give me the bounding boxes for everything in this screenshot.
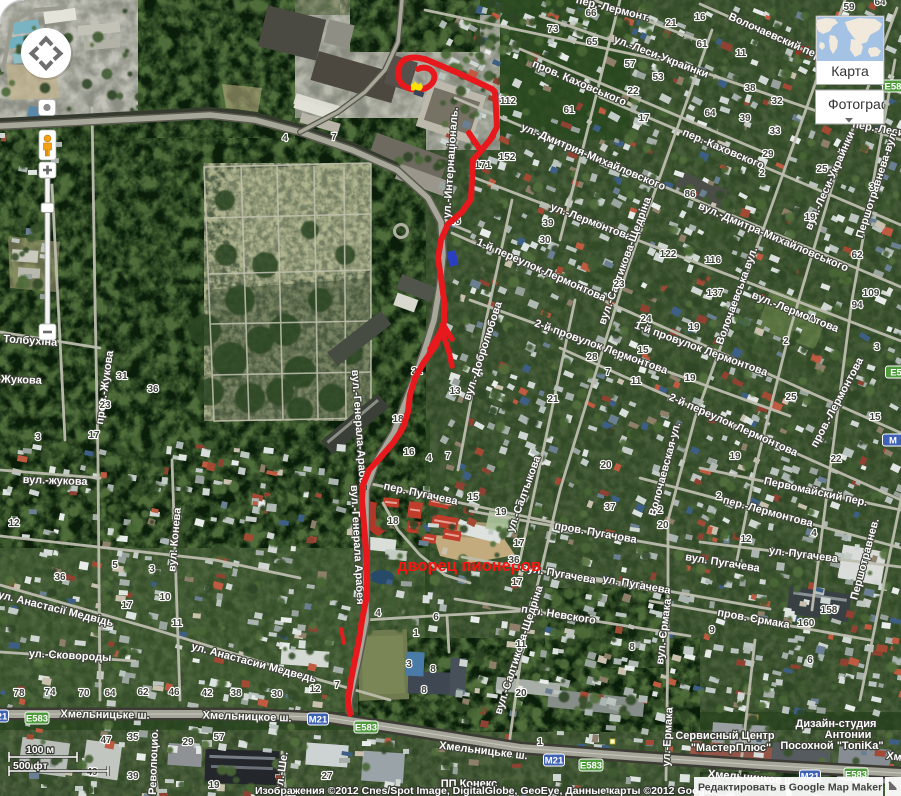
svg-text:Е58: Е58 bbox=[885, 82, 901, 93]
svg-text:17: 17 bbox=[88, 430, 100, 441]
svg-text:74: 74 bbox=[44, 687, 56, 698]
svg-text:24: 24 bbox=[640, 314, 652, 325]
svg-text:61: 61 bbox=[563, 105, 575, 116]
svg-text:3: 3 bbox=[869, 182, 875, 193]
svg-text:7: 7 bbox=[331, 132, 337, 143]
svg-text:Е5: Е5 bbox=[890, 368, 901, 379]
svg-text:Революцио.: Революцио. bbox=[147, 729, 161, 795]
svg-text:36: 36 bbox=[54, 572, 66, 583]
svg-text:25: 25 bbox=[785, 392, 797, 403]
svg-text:3: 3 bbox=[874, 342, 880, 353]
svg-text:23: 23 bbox=[99, 400, 111, 411]
svg-text:62: 62 bbox=[851, 250, 863, 261]
svg-text:"МастерПлюс": "МастерПлюс" bbox=[691, 742, 771, 754]
svg-text:59: 59 bbox=[843, 2, 855, 13]
svg-text:66: 66 bbox=[585, 8, 597, 19]
svg-text:19: 19 bbox=[804, 212, 816, 223]
svg-text:7: 7 bbox=[605, 367, 611, 378]
svg-text:17: 17 bbox=[511, 577, 523, 588]
svg-text:8: 8 bbox=[430, 664, 436, 675]
svg-text:31: 31 bbox=[116, 371, 128, 382]
svg-text:Е583: Е583 bbox=[26, 714, 48, 725]
svg-text:Е583: Е583 bbox=[580, 761, 602, 772]
svg-text:39: 39 bbox=[739, 113, 751, 124]
svg-text:11: 11 bbox=[172, 618, 183, 629]
svg-text:25: 25 bbox=[816, 164, 828, 175]
svg-text:10: 10 bbox=[159, 592, 171, 603]
svg-text:23: 23 bbox=[613, 279, 625, 290]
svg-text:30: 30 bbox=[271, 689, 283, 700]
svg-text:160: 160 bbox=[798, 618, 815, 629]
svg-text:М21: М21 bbox=[309, 715, 328, 726]
svg-text:36: 36 bbox=[508, 555, 520, 566]
svg-text:6: 6 bbox=[807, 655, 813, 666]
svg-text:27: 27 bbox=[321, 771, 333, 782]
svg-text:р-Жукова: р-Жукова bbox=[0, 373, 43, 387]
svg-text:116: 116 bbox=[705, 255, 722, 266]
svg-text:1: 1 bbox=[413, 628, 419, 639]
svg-text:17: 17 bbox=[513, 538, 525, 549]
svg-text:78: 78 bbox=[13, 688, 25, 699]
svg-text:1: 1 bbox=[537, 737, 543, 748]
svg-text:100 м: 100 м bbox=[26, 744, 54, 756]
svg-text:152: 152 bbox=[499, 152, 516, 163]
svg-text:19: 19 bbox=[208, 780, 220, 791]
svg-text:64: 64 bbox=[704, 108, 716, 119]
svg-text:11: 11 bbox=[516, 639, 527, 650]
svg-text:38: 38 bbox=[230, 688, 242, 699]
svg-text:Карта: Карта bbox=[831, 63, 869, 79]
svg-text:94: 94 bbox=[851, 300, 863, 311]
svg-text:36: 36 bbox=[147, 384, 159, 395]
svg-text:39: 39 bbox=[542, 218, 554, 229]
svg-text:8: 8 bbox=[421, 685, 427, 696]
svg-text:Изображения ©2012 Cnes/Spot Im: Изображения ©2012 Cnes/Spot Image, Digit… bbox=[255, 785, 721, 796]
svg-text:33: 33 bbox=[769, 126, 781, 137]
svg-text:29: 29 bbox=[182, 737, 194, 748]
svg-text:15: 15 bbox=[869, 412, 881, 423]
svg-text:70: 70 bbox=[78, 688, 90, 699]
svg-text:171: 171 bbox=[475, 160, 492, 171]
svg-text:28: 28 bbox=[586, 352, 598, 363]
svg-text:М21: М21 bbox=[0, 712, 8, 723]
svg-text:2: 2 bbox=[783, 336, 789, 347]
svg-text:35: 35 bbox=[127, 732, 139, 743]
svg-text:53: 53 bbox=[652, 72, 664, 83]
svg-text:86: 86 bbox=[684, 189, 696, 200]
svg-text:21: 21 bbox=[665, 18, 677, 29]
svg-text:137: 137 bbox=[707, 288, 724, 299]
svg-text:42: 42 bbox=[201, 688, 213, 699]
svg-text:3: 3 bbox=[35, 432, 41, 443]
svg-text:15: 15 bbox=[637, 345, 649, 356]
svg-text:18: 18 bbox=[387, 516, 399, 527]
svg-text:47: 47 bbox=[100, 735, 112, 746]
svg-text:вул.-жукова: вул.-жукова bbox=[22, 474, 88, 488]
svg-text:158: 158 bbox=[821, 605, 838, 616]
svg-text:4: 4 bbox=[426, 453, 432, 464]
svg-text:3: 3 bbox=[149, 564, 155, 575]
svg-text:Сервисный Центр: Сервисный Центр bbox=[675, 730, 775, 742]
svg-text:17: 17 bbox=[638, 113, 650, 124]
svg-text:46: 46 bbox=[168, 687, 180, 698]
svg-text:7: 7 bbox=[334, 680, 340, 691]
svg-text:57: 57 bbox=[624, 59, 636, 70]
svg-text:12: 12 bbox=[740, 534, 752, 545]
svg-text:21: 21 bbox=[547, 394, 559, 405]
svg-text:22: 22 bbox=[627, 86, 639, 97]
svg-text:39: 39 bbox=[127, 771, 139, 782]
svg-text:17: 17 bbox=[121, 600, 133, 611]
svg-text:500 фт: 500 фт bbox=[13, 760, 48, 772]
svg-text:4: 4 bbox=[811, 528, 817, 539]
svg-text:Редактировать в Google Map Mak: Редактировать в Google Map Maker bbox=[698, 782, 882, 794]
svg-text:64: 64 bbox=[874, 0, 886, 8]
svg-text:122: 122 bbox=[660, 249, 677, 260]
svg-text:19: 19 bbox=[684, 373, 696, 384]
svg-text:4: 4 bbox=[809, 314, 815, 325]
svg-text:57: 57 bbox=[213, 732, 225, 743]
svg-text:М21: М21 bbox=[545, 756, 564, 767]
svg-text:11: 11 bbox=[736, 48, 747, 59]
svg-text:73: 73 bbox=[547, 24, 559, 35]
svg-text:2: 2 bbox=[759, 168, 765, 179]
svg-text:7: 7 bbox=[445, 451, 451, 462]
svg-text:16: 16 bbox=[403, 447, 415, 458]
svg-text:6: 6 bbox=[433, 612, 439, 623]
svg-text:Посохной "ToniKa": Посохной "ToniKa" bbox=[780, 740, 883, 752]
svg-text:2: 2 bbox=[716, 491, 722, 502]
svg-text:37: 37 bbox=[604, 502, 616, 513]
svg-text:2: 2 bbox=[657, 505, 663, 516]
svg-text:20: 20 bbox=[600, 460, 612, 471]
svg-text:13: 13 bbox=[449, 386, 461, 397]
svg-text:112: 112 bbox=[500, 96, 517, 107]
svg-text:61: 61 bbox=[696, 39, 708, 50]
svg-text:109: 109 bbox=[863, 288, 880, 299]
svg-text:4: 4 bbox=[282, 133, 288, 144]
svg-text:12: 12 bbox=[309, 684, 321, 695]
svg-text:30: 30 bbox=[539, 235, 551, 246]
svg-text:64: 64 bbox=[104, 688, 116, 699]
svg-text:38: 38 bbox=[744, 83, 756, 94]
svg-text:32: 32 bbox=[771, 96, 783, 107]
svg-text:22: 22 bbox=[830, 454, 842, 465]
svg-text:3: 3 bbox=[406, 659, 412, 670]
svg-text:Хмельницьке ш.: Хмельницьке ш. bbox=[60, 708, 149, 722]
svg-text:19: 19 bbox=[729, 451, 741, 462]
svg-text:19: 19 bbox=[495, 507, 507, 518]
svg-text:15: 15 bbox=[467, 492, 479, 503]
svg-text:Е583: Е583 bbox=[355, 723, 377, 734]
svg-text:29: 29 bbox=[762, 149, 774, 160]
svg-text:65: 65 bbox=[586, 37, 598, 48]
svg-text:5: 5 bbox=[112, 560, 118, 571]
svg-text:12: 12 bbox=[8, 518, 20, 529]
svg-text:9: 9 bbox=[709, 625, 715, 636]
svg-text:62: 62 bbox=[137, 687, 149, 698]
svg-text:20: 20 bbox=[515, 688, 527, 699]
svg-text:М: М bbox=[889, 436, 897, 447]
svg-text:20: 20 bbox=[657, 520, 669, 531]
svg-text:19: 19 bbox=[688, 322, 700, 333]
svg-text:4: 4 bbox=[375, 608, 381, 619]
svg-text:16: 16 bbox=[694, 12, 706, 23]
svg-text:11: 11 bbox=[631, 376, 642, 387]
svg-text:8: 8 bbox=[629, 642, 635, 653]
